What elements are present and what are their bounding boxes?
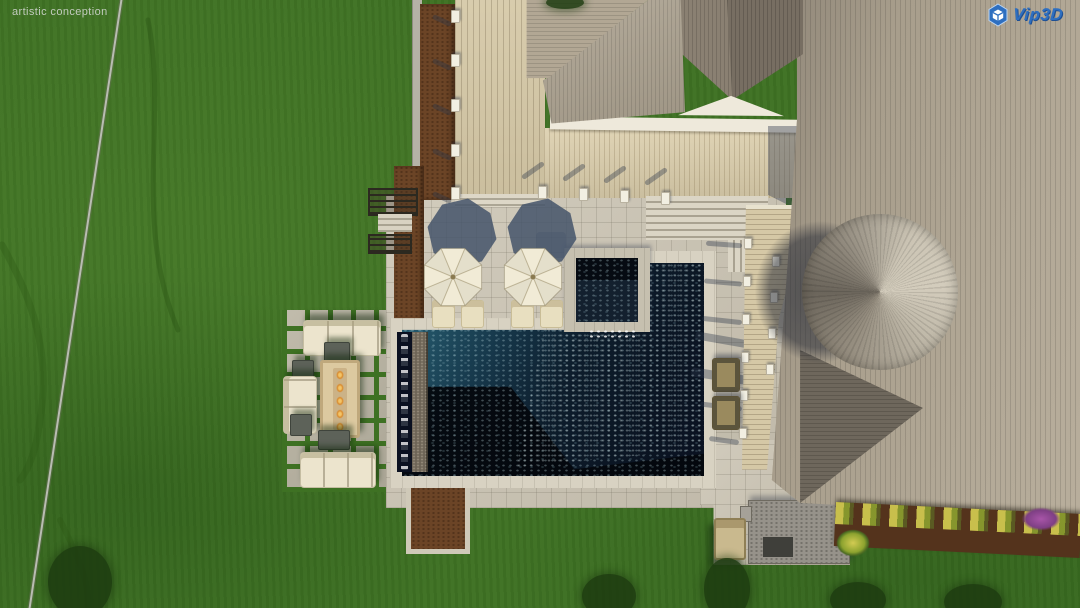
porch-column [579, 188, 588, 201]
garden-steps [378, 214, 412, 232]
deck-post [451, 99, 460, 112]
vip3d-logo-text: Vip3D [1012, 5, 1063, 25]
patio-umbrella [500, 244, 566, 310]
patio-umbrella [420, 244, 486, 310]
turret-shingle-lines [802, 214, 958, 370]
porch-post [739, 428, 747, 439]
backyard-pool-3d-rendering: artistic conception Vip3D [0, 0, 1080, 608]
planter-bed-below-pool [406, 478, 470, 554]
ottoman [318, 430, 350, 450]
spa-spillway-foam [588, 329, 638, 338]
porch-column [538, 186, 547, 199]
tree-shadow [48, 546, 112, 608]
deck-post [451, 187, 460, 200]
purple-flowers [1016, 504, 1066, 534]
property-fence-line [29, 0, 122, 608]
outdoor-sofa [300, 452, 376, 488]
ottoman [290, 414, 312, 436]
deck-post [451, 10, 460, 23]
vip3d-hexagon-cube-icon [986, 3, 1010, 27]
grass-contour-line [148, 20, 178, 330]
grass-contour-line [2, 245, 43, 480]
patio-chair [712, 396, 740, 430]
porch-post [740, 390, 748, 401]
porch-column [661, 192, 670, 205]
falling-water-streaks [401, 334, 408, 470]
kitchen-opening [763, 537, 793, 557]
deck-post [451, 54, 460, 67]
fire-table [320, 360, 360, 438]
ottoman [324, 342, 350, 362]
watermark-label: artistic conception [12, 6, 108, 18]
porch-column [620, 190, 629, 203]
spa-water [576, 258, 638, 322]
deck-post [451, 144, 460, 157]
water-sparkle-texture [576, 258, 638, 322]
garden-arbor [368, 188, 418, 216]
patio-chair [714, 518, 746, 560]
garden-bench [368, 234, 412, 254]
vip3d-logo: Vip3D [986, 3, 1063, 27]
fire-flames [333, 368, 347, 430]
yellow-shrub [832, 526, 874, 560]
raised-stone-wall [412, 332, 428, 472]
conical-turret-roof [802, 214, 958, 370]
